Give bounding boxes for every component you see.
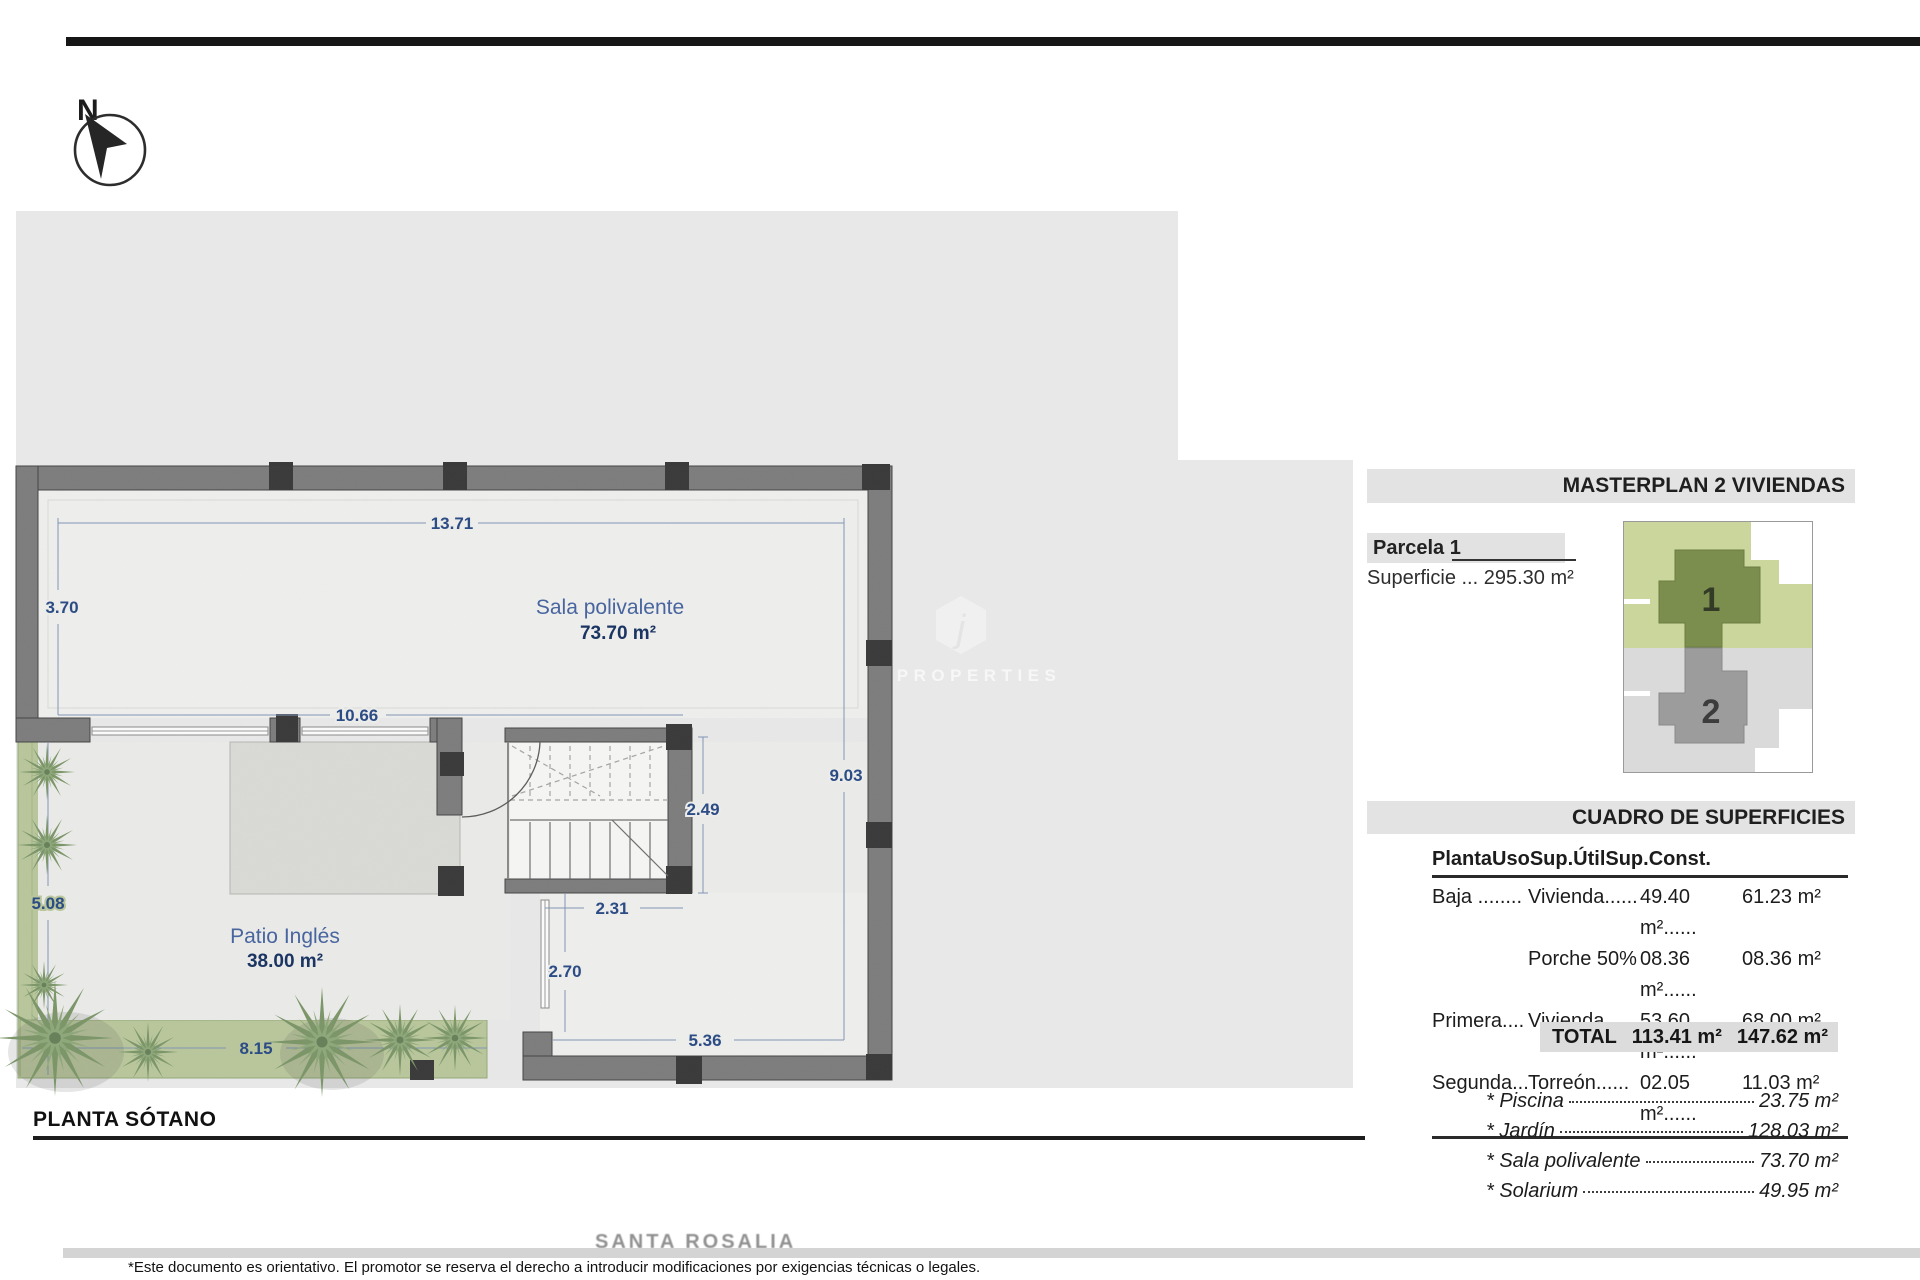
surfaces-table-header: Planta Uso Sup.Útil Sup.Const. bbox=[1432, 846, 1848, 872]
list-item: * Solarium 49.95 m² bbox=[1486, 1176, 1838, 1206]
masterplan-map: 1 2 bbox=[1623, 521, 1813, 773]
col-sup-const: Sup.Const. bbox=[1605, 846, 1711, 872]
parcela-text: Parcela 1 bbox=[1373, 537, 1461, 560]
dim-mid: 10.66 bbox=[336, 706, 379, 725]
table-row: Porche 50% 08.36 m²...... 08.36 m² bbox=[1432, 944, 1848, 1006]
floorplan-drawing: j JJ PROPERTIES bbox=[0, 0, 1400, 1100]
plan-sheet: N j JJ PROPERTIES bbox=[0, 0, 1920, 1280]
masterplan-title-text: MASTERPLAN 2 VIVIENDAS bbox=[1563, 474, 1845, 498]
table-rule-top bbox=[1432, 875, 1848, 878]
list-item: * Piscina 23.75 m² bbox=[1486, 1086, 1838, 1116]
dim-porch-h: 5.36 bbox=[688, 1031, 721, 1050]
title-rule bbox=[33, 1136, 1365, 1140]
sala-label: Sala polivalente bbox=[536, 596, 684, 619]
cuadro-title-text: CUADRO DE SUPERFICIES bbox=[1572, 806, 1845, 830]
patio-label: Patio Inglés bbox=[230, 925, 340, 948]
disclaimer-text: *Este documento es orientativo. El promo… bbox=[128, 1259, 980, 1276]
total-bar: TOTAL 113.41 m² 147.62 m² bbox=[1540, 1022, 1838, 1052]
table-row: Baja ........ Vivienda...... 49.40 m²...… bbox=[1432, 882, 1848, 944]
col-planta: Planta bbox=[1432, 846, 1492, 872]
dim-right: 9.03 bbox=[829, 766, 862, 785]
ghost-watermark-text: SANTA ROSALIA bbox=[595, 1231, 855, 1249]
dim-top: 13.71 bbox=[431, 514, 474, 533]
page-title: PLANTA SÓTANO bbox=[33, 1108, 216, 1132]
list-item: * Jardín 128.03 m² bbox=[1486, 1116, 1838, 1146]
parcela-superficie: Superficie ... 295.30 m² bbox=[1367, 567, 1574, 590]
col-uso: Uso bbox=[1492, 846, 1530, 872]
col-sup-util: Sup.Útil bbox=[1530, 846, 1606, 872]
dim-left-lower: 5.08 bbox=[31, 894, 64, 913]
cuadro-title: CUADRO DE SUPERFICIES bbox=[1367, 801, 1855, 834]
total-util: 113.41 m² bbox=[1632, 1026, 1722, 1049]
masterplan-title: MASTERPLAN 2 VIVIENDAS bbox=[1367, 469, 1855, 503]
unit-2-label: 2 bbox=[1702, 693, 1721, 731]
total-label: TOTAL bbox=[1552, 1026, 1617, 1049]
dim-garden: 8.15 bbox=[239, 1039, 272, 1058]
sala-area: 73.70 m² bbox=[580, 623, 656, 644]
unit-1-label: 1 bbox=[1702, 581, 1721, 619]
footer-rule bbox=[63, 1248, 1920, 1258]
list-item: * Sala polivalente 73.70 m² bbox=[1486, 1146, 1838, 1176]
dim-stair: 2.49 bbox=[686, 800, 719, 819]
dim-under-stair: 2.31 bbox=[595, 899, 628, 918]
dim-left-upper: 3.70 bbox=[45, 598, 78, 617]
total-const: 147.62 m² bbox=[1737, 1026, 1828, 1049]
patio-area: 38.00 m² bbox=[247, 951, 323, 972]
extras-list: * Piscina 23.75 m² * Jardín 128.03 m² * … bbox=[1486, 1086, 1838, 1206]
dim-porch-v: 2.70 bbox=[548, 962, 581, 981]
parcela-underline bbox=[1452, 559, 1576, 561]
